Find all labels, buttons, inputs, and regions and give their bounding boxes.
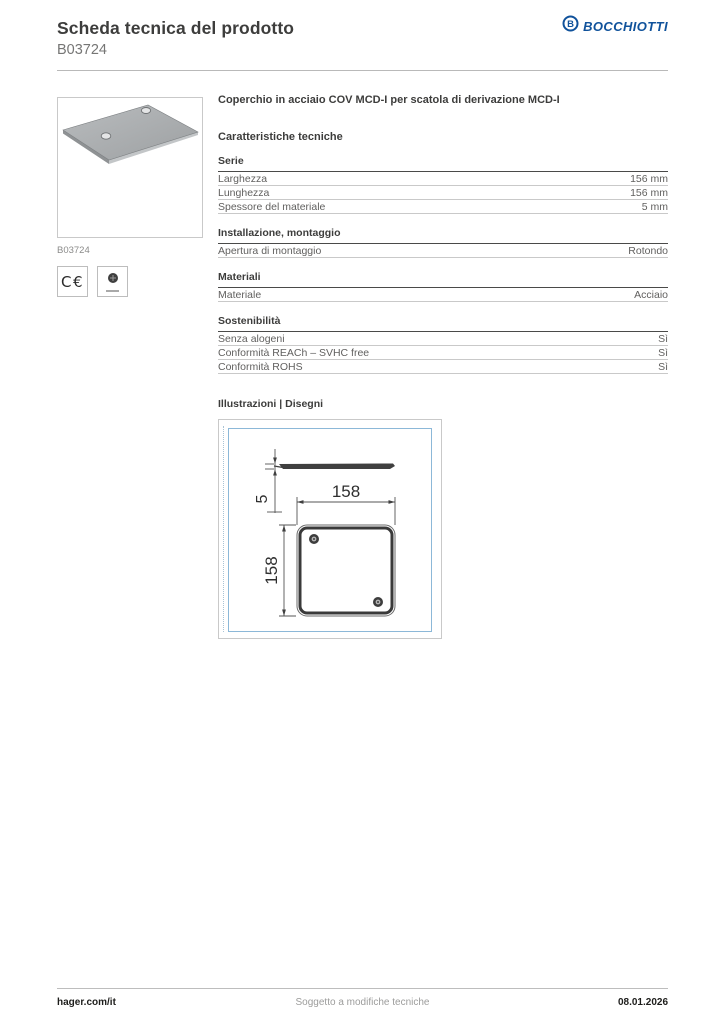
drawing-edge-dots (223, 426, 224, 632)
spec-value: 156 mm (630, 187, 668, 199)
spec-label: Materiale (218, 289, 261, 301)
footer-divider (57, 988, 668, 989)
spec-value: Sì (658, 347, 668, 359)
datasheet-page: Scheda tecnica del prodotto B03724 B BOC… (0, 0, 724, 1024)
steel-cover-illustration (58, 98, 202, 237)
spec-row: Senza alogeniSì (218, 332, 668, 346)
bocchiotti-circle-b-icon: B (562, 15, 579, 37)
footer: hager.com/it Soggetto a modifiche tecnic… (57, 997, 668, 1008)
product-image (57, 97, 203, 238)
spec-label: Apertura di montaggio (218, 245, 321, 257)
spec-value: Acciaio (634, 289, 668, 301)
product-code: B03724 (57, 42, 668, 58)
spec-label: Conformità REACh – SVHC free (218, 347, 369, 359)
thickness-dimension-label: 5 (254, 495, 271, 504)
halogen-free-icon (107, 271, 119, 289)
spec-group-title: Materiali (218, 271, 668, 288)
spec-value: 5 mm (642, 201, 668, 213)
halogen-free-caption (106, 290, 119, 292)
svg-text:B: B (567, 19, 574, 30)
spec-group-title: Serie (218, 155, 668, 172)
height-dimension-label: 158 (262, 557, 281, 585)
spec-row: Larghezza156 mm (218, 172, 668, 186)
halogen-free-mark-box (97, 266, 128, 297)
technical-drawing-frame: 5 (218, 419, 442, 639)
spec-groups: SerieLarghezza156 mmLunghezza156 mmSpess… (218, 155, 668, 374)
spec-group: SostenibilitàSenza alogeniSìConformità R… (218, 315, 668, 374)
brand-logo: B BOCCHIOTTI (562, 15, 668, 37)
spec-row: Conformità ROHSSì (218, 360, 668, 374)
footer-website: hager.com/it (57, 997, 261, 1008)
spec-group: Installazione, montaggioApertura di mont… (218, 227, 668, 258)
spec-row: Apertura di montaggioRotondo (218, 244, 668, 258)
spec-group-title: Installazione, montaggio (218, 227, 668, 244)
footer-disclaimer: Soggetto a modifiche tecniche (261, 997, 465, 1008)
ce-mark-box: C€ (57, 266, 88, 297)
spec-group-title: Sostenibilità (218, 315, 668, 332)
spec-label: Lunghezza (218, 187, 269, 199)
footer-date: 08.01.2026 (464, 997, 668, 1008)
product-media-column: B03724 C€ (57, 97, 205, 297)
width-dimension-label: 158 (332, 482, 360, 501)
spec-value: Sì (658, 361, 668, 373)
certification-marks: C€ (57, 266, 205, 297)
spec-label: Larghezza (218, 173, 267, 185)
product-title: Coperchio in acciaio COV MCD-I per scato… (218, 93, 668, 107)
spec-row: Conformità REACh – SVHC freeSì (218, 346, 668, 360)
spec-value: 156 mm (630, 173, 668, 185)
spec-label: Senza alogeni (218, 333, 285, 345)
ce-mark-icon: C€ (61, 273, 84, 291)
specs-column: Coperchio in acciaio COV MCD-I per scato… (218, 93, 668, 639)
spec-group: MaterialiMaterialeAcciaio (218, 271, 668, 302)
spec-value: Rotondo (628, 245, 668, 257)
spec-row: MaterialeAcciaio (218, 288, 668, 302)
spec-value: Sì (658, 333, 668, 345)
section-title-illustrazioni: Illustrazioni | Disegni (218, 398, 668, 410)
spec-row: Lunghezza156 mm (218, 186, 668, 200)
spec-row: Spessore del materiale5 mm (218, 200, 668, 214)
image-caption: B03724 (57, 245, 205, 256)
spec-label: Spessore del materiale (218, 201, 325, 213)
spec-group: SerieLarghezza156 mmLunghezza156 mmSpess… (218, 155, 668, 214)
spec-label: Conformità ROHS (218, 361, 303, 373)
section-title-caratteristiche: Caratteristiche tecniche (218, 131, 668, 143)
brand-wordmark: BOCCHIOTTI (583, 19, 668, 34)
header: Scheda tecnica del prodotto B03724 B BOC… (57, 18, 668, 58)
header-divider (57, 70, 668, 71)
technical-drawing: 5 (228, 428, 432, 632)
